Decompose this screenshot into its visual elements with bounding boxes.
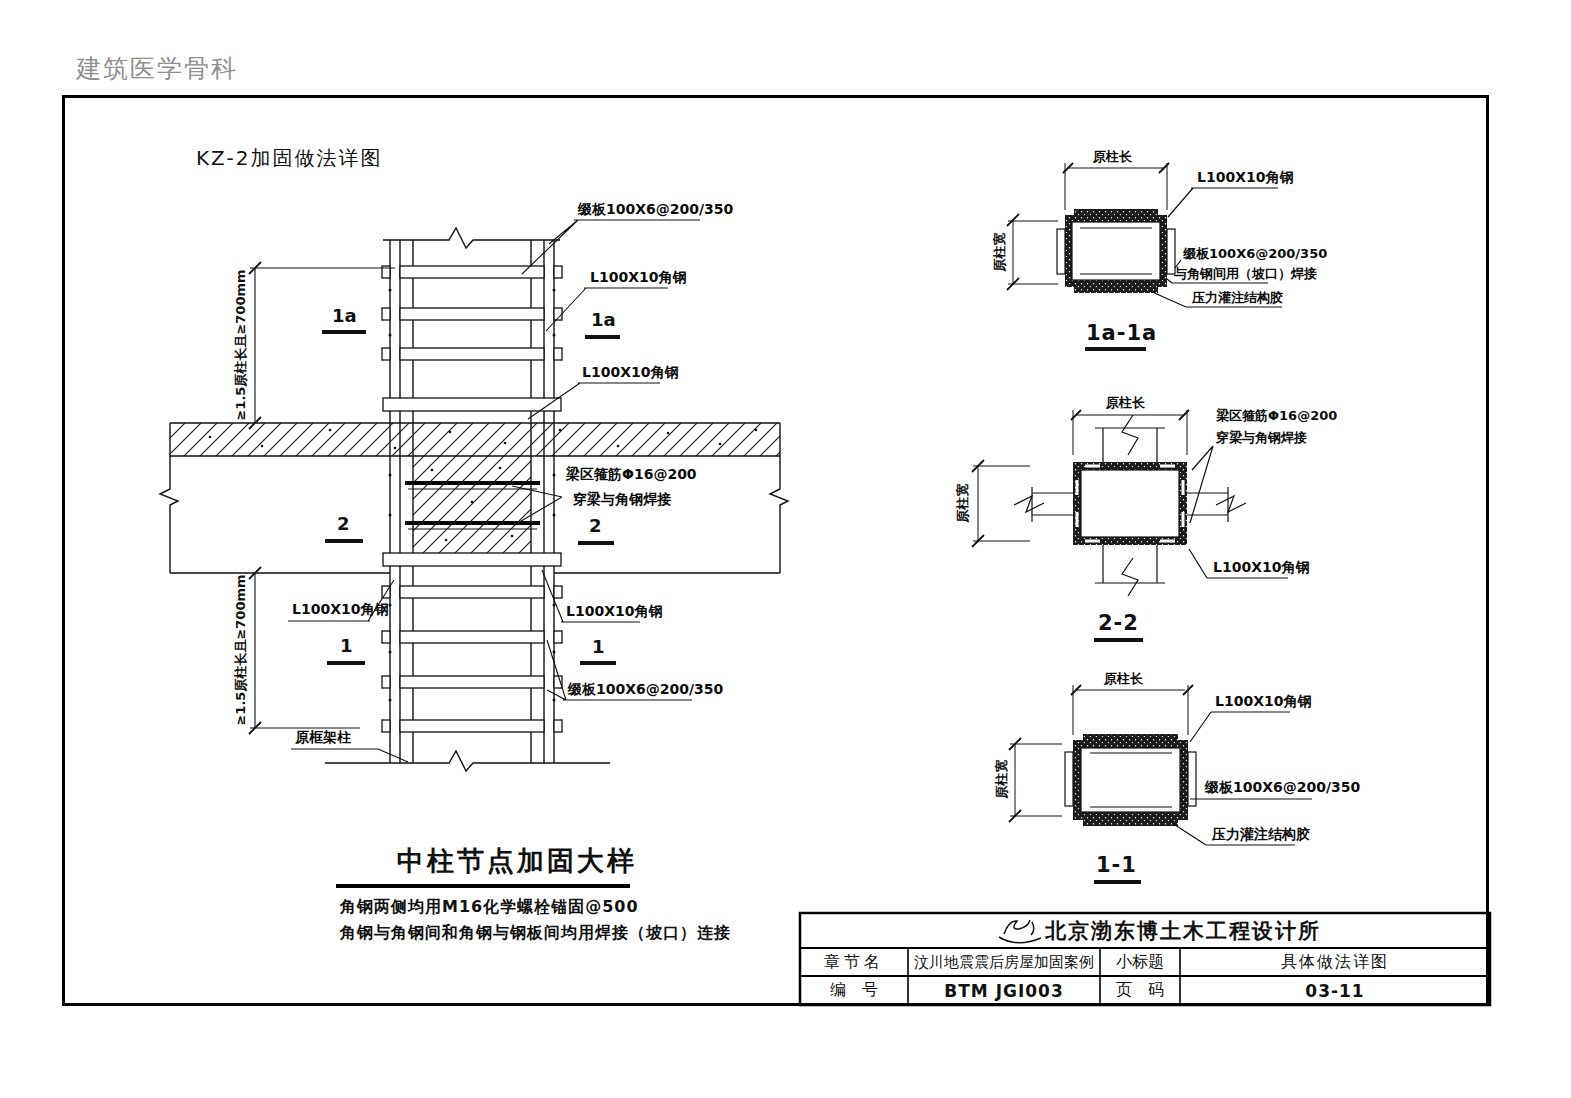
label-beam-bars-2: 穿梁与角钢焊接 [573, 491, 671, 509]
cell-chapter-label: 章节名 [800, 948, 908, 976]
label-batten-top: 缀板100X6@200/350 [578, 201, 733, 219]
s1a-title: 1a-1a [1086, 321, 1157, 345]
s11-label-batten: 缀板100X6@200/350 [1205, 779, 1360, 797]
s22-label-angle: L100X10角钢 [1213, 559, 1309, 577]
company-logo [999, 920, 1041, 943]
s11-dim-top: 原柱长 [1104, 670, 1143, 688]
s1a-label-weld: 与角钢间用（坡口）焊接 [1174, 265, 1317, 283]
s11-label-angle: L100X10角钢 [1215, 693, 1311, 711]
dim-lower: ≥1.5原柱长且≥700mm [232, 574, 250, 725]
s1a-dim-left: 原柱宽 [991, 233, 1009, 272]
s11-dim-left: 原柱宽 [993, 760, 1011, 799]
cell-number-value: BTM JGI003 [908, 976, 1100, 1005]
section-mark-1-left: 1 [340, 635, 353, 656]
section-mark-1a-right: 1a [591, 309, 616, 330]
cell-number-label: 编 号 [800, 976, 908, 1005]
s22-title: 2-2 [1098, 611, 1139, 635]
label-beam-bars-1: 梁区箍筋Φ16@200 [566, 466, 697, 484]
s1a-dim-top: 原柱长 [1093, 148, 1132, 166]
cell-subtitle-label: 小标题 [1100, 948, 1180, 976]
slab-beam [160, 423, 788, 573]
section-mark-1-right: 1 [592, 636, 605, 657]
main-caption: 中柱节点加固大样 [397, 843, 637, 879]
label-angle-top: L100X10角钢 [590, 269, 686, 287]
s11-title: 1-1 [1096, 853, 1137, 877]
label-angle-lower-left: L100X10角钢 [292, 601, 388, 619]
cell-page-value: 03-11 [1180, 976, 1490, 1005]
section-mark-2-left: 2 [337, 513, 350, 534]
label-original-column: 原框架柱 [295, 729, 351, 747]
note-2: 角钢与角钢间和角钢与钢板间均用焊接（坡口）连接 [340, 923, 731, 944]
s1a-label-glue: 压力灌注结构胶 [1192, 289, 1283, 307]
note-1: 角钢两侧均用M16化学螺栓锚固@500 [340, 897, 639, 918]
s1a-label-angle: L100X10角钢 [1197, 169, 1293, 187]
sheet-title: KZ-2加固做法详图 [196, 145, 382, 172]
label-angle-lower-right: L100X10角钢 [566, 603, 662, 621]
s1a-label-batten: 缀板100X6@200/350 [1183, 245, 1327, 263]
section-mark-2-right: 2 [589, 515, 602, 536]
label-angle-mid: L100X10角钢 [582, 364, 678, 382]
s11-label-glue: 压力灌注结构胶 [1212, 826, 1310, 844]
cell-chapter-value: 汶川地震震后房屋加固案例 [908, 948, 1100, 976]
drawing-sheet: 建筑医学骨科 [0, 0, 1571, 1098]
label-batten-lower: 缀板100X6@200/350 [568, 681, 723, 699]
cell-subtitle-value: 具体做法详图 [1180, 948, 1490, 976]
s22-label-bars-1: 梁区箍筋Φ16@200 [1216, 407, 1337, 425]
s22-dim-top: 原柱长 [1106, 394, 1145, 412]
s22-label-bars-2: 穿梁与角钢焊接 [1216, 429, 1307, 447]
section-mark-1a-left: 1a [332, 305, 357, 326]
s22-dim-left: 原柱宽 [954, 484, 972, 523]
cell-page-label: 页 码 [1100, 976, 1180, 1005]
dim-upper: ≥1.5原柱长且≥700mm [232, 269, 250, 420]
company-name: 北京渤东博土木工程设计所 [1045, 915, 1345, 947]
